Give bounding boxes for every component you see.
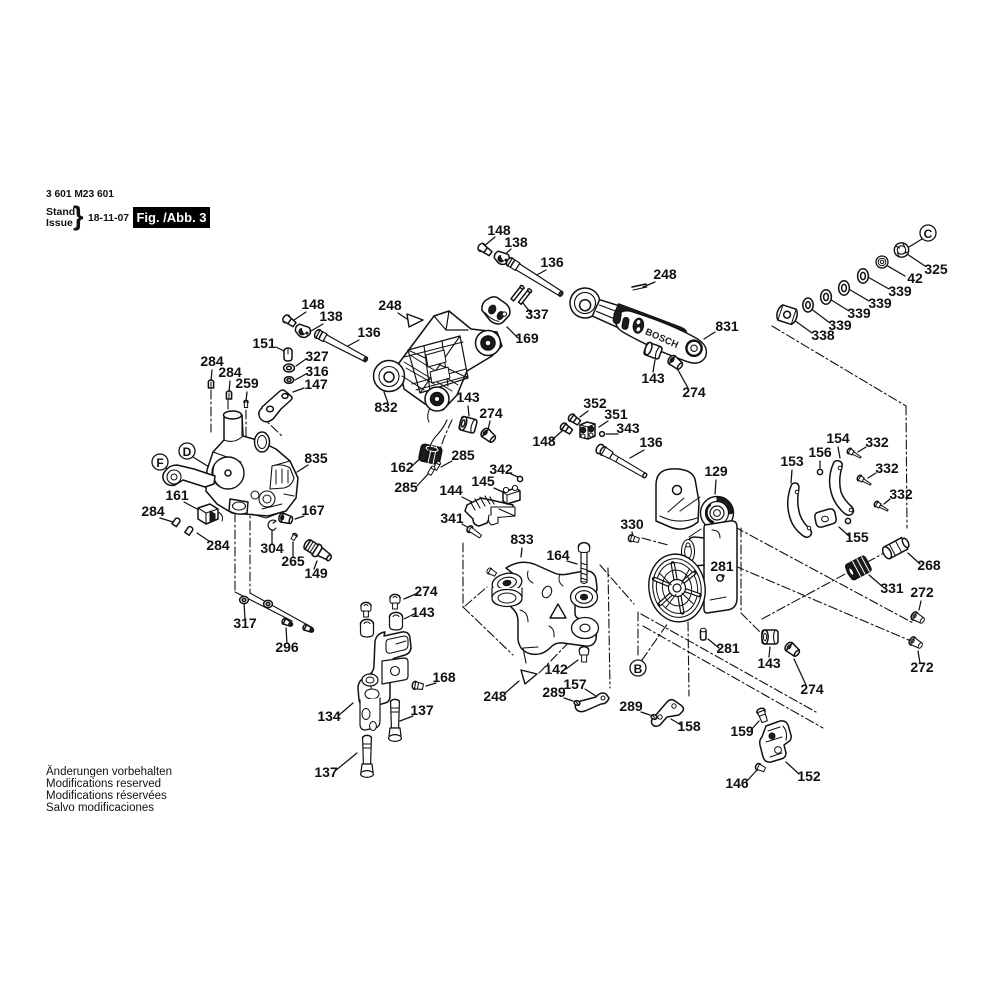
- svg-text:835: 835: [304, 450, 328, 466]
- svg-text:167: 167: [301, 502, 325, 518]
- svg-text:285: 285: [451, 447, 475, 463]
- svg-text:161: 161: [165, 487, 189, 503]
- svg-text:259: 259: [235, 375, 259, 391]
- svg-text:331: 331: [880, 580, 904, 596]
- svg-text:Issue: Issue: [46, 217, 73, 229]
- svg-text:138: 138: [504, 234, 528, 250]
- svg-text:Modifications reserved: Modifications reserved: [46, 778, 161, 790]
- svg-text:317: 317: [233, 615, 257, 631]
- svg-text:147: 147: [304, 376, 328, 392]
- svg-text:343: 343: [616, 420, 640, 436]
- svg-text:154: 154: [826, 430, 850, 446]
- svg-text:162: 162: [390, 459, 414, 475]
- svg-text:296: 296: [275, 639, 299, 655]
- svg-text:138: 138: [319, 308, 343, 324]
- svg-text:155: 155: [845, 529, 869, 545]
- svg-text:152: 152: [797, 768, 821, 784]
- svg-text:158: 158: [677, 718, 701, 734]
- svg-text:143: 143: [757, 655, 781, 671]
- svg-text:C: C: [924, 227, 933, 241]
- svg-text:332: 332: [875, 460, 899, 476]
- svg-text:143: 143: [456, 389, 480, 405]
- svg-text:281: 281: [710, 558, 734, 574]
- svg-text:D: D: [183, 445, 192, 459]
- svg-text:274: 274: [682, 384, 706, 400]
- svg-text:337: 337: [525, 306, 549, 322]
- svg-text:159: 159: [730, 723, 754, 739]
- svg-text:143: 143: [641, 370, 665, 386]
- svg-text:Salvo modificaciones: Salvo modificaciones: [46, 802, 154, 814]
- svg-text:274: 274: [479, 405, 503, 421]
- svg-text:284: 284: [206, 537, 230, 553]
- svg-text:338: 338: [811, 327, 835, 343]
- svg-text:332: 332: [865, 434, 889, 450]
- svg-text:289: 289: [542, 684, 566, 700]
- svg-text:168: 168: [432, 669, 456, 685]
- svg-text:274: 274: [414, 583, 438, 599]
- svg-text:272: 272: [910, 584, 934, 600]
- svg-text:169: 169: [515, 330, 539, 346]
- svg-text:281: 281: [716, 640, 740, 656]
- svg-text:Änderungen vorbehalten: Änderungen vorbehalten: [46, 766, 172, 778]
- svg-text:148: 148: [532, 433, 556, 449]
- svg-text:268: 268: [917, 557, 941, 573]
- svg-text:146: 146: [725, 775, 749, 791]
- svg-text:248: 248: [653, 266, 677, 282]
- svg-text:144: 144: [439, 482, 463, 498]
- svg-text:137: 137: [410, 702, 434, 718]
- svg-text:}: }: [73, 201, 84, 231]
- svg-text:134: 134: [317, 708, 341, 724]
- svg-text:129: 129: [704, 463, 728, 479]
- svg-text:156: 156: [808, 444, 832, 460]
- svg-text:149: 149: [304, 565, 328, 581]
- svg-text:265: 265: [281, 553, 305, 569]
- svg-text:Modifications réservées: Modifications réservées: [46, 790, 167, 802]
- svg-text:164: 164: [546, 547, 570, 563]
- svg-text:18-11-07: 18-11-07: [88, 213, 129, 224]
- svg-text:330: 330: [620, 516, 644, 532]
- svg-text:153: 153: [780, 453, 804, 469]
- svg-text:339: 339: [888, 283, 912, 299]
- svg-text:3 601 M23 601: 3 601 M23 601: [46, 189, 114, 200]
- svg-text:136: 136: [540, 254, 564, 270]
- svg-text:274: 274: [800, 681, 824, 697]
- svg-text:143: 143: [411, 604, 435, 620]
- svg-text:341: 341: [440, 510, 464, 526]
- svg-text:B: B: [634, 662, 643, 676]
- svg-text:285: 285: [394, 479, 418, 495]
- svg-text:137: 137: [314, 764, 338, 780]
- svg-text:Fig. /Abb. 3: Fig. /Abb. 3: [136, 210, 206, 225]
- svg-text:831: 831: [715, 318, 739, 334]
- svg-text:157: 157: [563, 676, 587, 692]
- svg-text:142: 142: [544, 661, 568, 677]
- svg-text:832: 832: [374, 399, 398, 415]
- svg-text:284: 284: [141, 503, 165, 519]
- svg-text:151: 151: [252, 335, 276, 351]
- svg-text:248: 248: [378, 297, 402, 313]
- svg-text:833: 833: [510, 531, 534, 547]
- svg-text:272: 272: [910, 659, 934, 675]
- svg-text:332: 332: [889, 486, 913, 502]
- svg-text:325: 325: [924, 261, 948, 277]
- svg-text:136: 136: [639, 434, 663, 450]
- svg-text:327: 327: [305, 348, 329, 364]
- svg-text:289: 289: [619, 698, 643, 714]
- svg-text:F: F: [156, 456, 163, 470]
- svg-text:248: 248: [483, 688, 507, 704]
- svg-text:145: 145: [471, 473, 495, 489]
- svg-text:339: 339: [868, 295, 892, 311]
- svg-text:136: 136: [357, 324, 381, 340]
